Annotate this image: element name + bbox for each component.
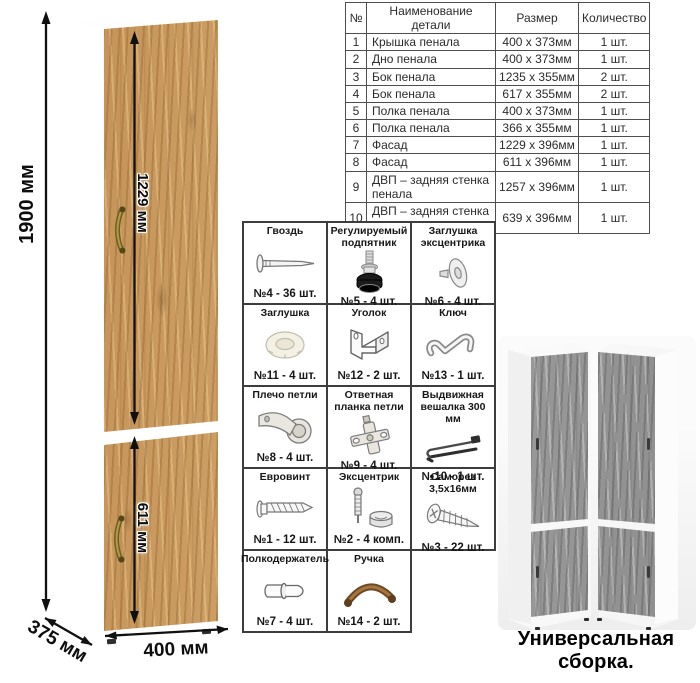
table-cell: 611 х 396мм — [496, 154, 579, 171]
universal-assembly-caption: Универсальная сборка. — [493, 628, 699, 674]
hardware-item-count: №3 - 22 шт. — [422, 542, 485, 557]
table-cell: 5 — [346, 102, 367, 119]
table-row: 1Крышка пенала400 х 373мм1 шт. — [346, 34, 650, 51]
hardware-row: Полкодержатель№7 - 4 шт.Ручка№14 - 2 шт. — [243, 550, 495, 632]
hardware-item-name: Евровинт — [259, 469, 312, 484]
table-cell: 1 шт. — [579, 171, 650, 202]
table-cell: 6 — [346, 120, 367, 137]
table-cell: 639 х 396мм — [496, 202, 579, 233]
variant-foot — [597, 618, 602, 621]
table-cell: Фасад — [367, 137, 496, 154]
table-row: 6Полка пенала366 х 355мм1 шт. — [346, 120, 650, 137]
table-cell: 4 — [346, 85, 367, 102]
hardware-item: Евровинт№1 - 12 шт. — [243, 468, 327, 550]
hardware-item: Гвоздь№4 - 36 шт. — [243, 222, 327, 304]
hardware-item-name: Регулируемый подпятник — [328, 223, 410, 250]
hardware-row: Заглушка№11 - 4 шт.Уголок№12 - 2 шт.Ключ… — [243, 304, 495, 386]
hardware-item: Выдвижная вешалка 300 мм№10 - 1 шт. — [411, 386, 495, 468]
table-cell: 400 х 373мм — [496, 102, 579, 119]
variant-left-handle — [536, 566, 539, 578]
dimension-lower-door-label: 611 мм — [131, 468, 153, 588]
hardware-item-count: №11 - 4 шт. — [254, 370, 316, 385]
hardware-item: Плечо петли№8 - 4 шт. — [243, 386, 327, 468]
hardware-item: Полкодержатель№7 - 4 шт. — [243, 550, 327, 632]
hardware-item: Уголок№12 - 2 шт. — [327, 304, 411, 386]
table-cell: Крышка пенала — [367, 34, 496, 51]
table-row: 3Бок пенала1235 х 355мм2 шт. — [346, 68, 650, 85]
table-cell: 2 шт. — [579, 68, 650, 85]
euroscrew-icon — [244, 484, 326, 534]
hardware-item: Ключ№13 - 1 шт. — [411, 304, 495, 386]
table-cell: 2 — [346, 51, 367, 68]
parts-table-header-row: № Наименование детали Размер Количество — [346, 3, 650, 34]
table-cell: 1 шт. — [579, 137, 650, 154]
hinge-plate-icon — [328, 414, 410, 460]
hardware-item-name: Саморез 3,5х16мм — [412, 469, 494, 496]
hardware-item: Эксцентрик№2 - 4 комп. — [327, 468, 411, 550]
hardware-item-name: Выдвижная вешалка 300 мм — [412, 387, 494, 425]
hardware-row: Евровинт№1 - 12 шт.Эксцентрик№2 - 4 комп… — [243, 468, 495, 550]
table-cell: 1 шт. — [579, 51, 650, 68]
nail-icon — [244, 238, 326, 288]
table-row: 7Фасад1229 х 396мм1 шт. — [346, 137, 650, 154]
dimension-upper-door-label: 1229 мм — [131, 143, 153, 263]
hardware-item-count: №14 - 2 шт. — [338, 616, 401, 631]
table-row: 9ДВП – задняя стенка пенала1257 х 396мм1… — [346, 171, 650, 202]
table-cell: 1 шт. — [579, 102, 650, 119]
shelf-pin-icon — [244, 566, 326, 616]
table-cell: 1 — [346, 34, 367, 51]
table-row: 2Дно пенала400 х 373мм1 шт. — [346, 51, 650, 68]
table-cell: 400 х 373мм — [496, 51, 579, 68]
parts-table-header: Размер — [496, 3, 579, 34]
parts-table-header: Количество — [579, 3, 650, 34]
hardware-item-name: Уголок — [351, 305, 388, 320]
hardware-item-count: №8 - 4 шт. — [257, 452, 313, 467]
hardware-item-name: Заглушка — [260, 305, 311, 320]
table-cell: ДВП – задняя стенка пенала — [367, 171, 496, 202]
assembly-sheet: 1900 мм 1229 мм 611 мм 400 мм 375 мм № Н… — [0, 0, 700, 683]
hardware-item: Регулируемый подпятник№5 - 4 шт. — [327, 222, 411, 304]
table-cell: 3 — [346, 68, 367, 85]
eccentric-plug-icon — [412, 250, 494, 296]
hardware-item-count: №7 - 4 шт. — [257, 616, 313, 631]
hardware-item-count: №2 - 4 комп. — [334, 534, 404, 549]
parts-table-header: № — [346, 3, 367, 34]
table-cell: Дно пенала — [367, 51, 496, 68]
table-row: 5Полка пенала400 х 373мм1 шт. — [346, 102, 650, 119]
table-cell: 400 х 373мм — [496, 34, 579, 51]
table-cell: Фасад — [367, 154, 496, 171]
hardware-row: Плечо петли№8 - 4 шт.Ответная планка пет… — [243, 386, 495, 468]
key-icon — [412, 320, 494, 370]
hardware-grid: Гвоздь№4 - 36 шт.Регулируемый подпятник№… — [242, 221, 496, 633]
hardware-item-name: Плечо петли — [251, 387, 318, 402]
table-cell: Полка пенала — [367, 102, 496, 119]
parts-table-header: Наименование детали — [367, 3, 496, 34]
hardware-row: Гвоздь№4 - 36 шт.Регулируемый подпятник№… — [243, 222, 495, 304]
hardware-item-name: Эксцентрик — [338, 469, 400, 484]
dimension-height-label: 1900 мм — [16, 144, 38, 264]
hardware-empty-cell — [411, 550, 495, 632]
table-cell: 2 шт. — [579, 85, 650, 102]
table-cell: 1 шт. — [579, 202, 650, 233]
photo-background — [498, 336, 696, 630]
parts-table: № Наименование детали Размер Количество … — [345, 2, 650, 234]
hardware-item-name: Гвоздь — [266, 223, 305, 238]
self-tapping-screw-icon — [412, 496, 494, 542]
table-cell: 8 — [346, 154, 367, 171]
hardware-item: Саморез 3,5х16мм№3 - 22 шт. — [411, 468, 495, 550]
table-cell: 617 х 355мм — [496, 85, 579, 102]
table-cell: 1235 х 355мм — [496, 68, 579, 85]
pullout-hanger-icon — [412, 425, 494, 471]
table-cell: Полка пенала — [367, 120, 496, 137]
hardware-grid-body: Гвоздь№4 - 36 шт.Регулируемый подпятник№… — [243, 222, 495, 632]
variant-right-handle — [647, 566, 650, 578]
variant-foot — [584, 618, 589, 621]
table-row: 8Фасад611 х 396мм1 шт. — [346, 154, 650, 171]
parts-table-body: 1Крышка пенала400 х 373мм1 шт.2Дно пенал… — [346, 34, 650, 234]
table-cell: 1 шт. — [579, 34, 650, 51]
hardware-item: Заглушка№11 - 4 шт. — [243, 304, 327, 386]
table-cell: Бок пенала — [367, 68, 496, 85]
hardware-item-name: Заглушка эксцентрика — [412, 223, 494, 250]
hardware-item-name: Ключ — [438, 305, 468, 320]
hardware-item-count: №4 - 36 шт. — [254, 288, 317, 303]
table-cell: 1257 х 396мм — [496, 171, 579, 202]
adjustable-foot-icon — [328, 250, 410, 296]
table-cell: 9 — [346, 171, 367, 202]
handle-icon — [328, 566, 410, 616]
hardware-item: Ручка№14 - 2 шт. — [327, 550, 411, 632]
table-cell: 1 шт. — [579, 120, 650, 137]
plug-icon — [244, 320, 326, 370]
table-cell: 7 — [346, 137, 367, 154]
hardware-item-name: Полкодержатель — [240, 551, 330, 566]
hardware-item-name: Ответная планка петли — [328, 387, 410, 414]
hardware-item-name: Ручка — [353, 551, 385, 566]
corner-bracket-icon — [328, 320, 410, 370]
table-row: 4Бок пенала617 х 355мм2 шт. — [346, 85, 650, 102]
table-cell: Бок пенала — [367, 85, 496, 102]
hardware-item-count: №12 - 2 шт. — [338, 370, 401, 385]
variant-left-handle — [536, 438, 539, 450]
table-cell: 1 шт. — [579, 154, 650, 171]
hinge-arm-icon — [244, 402, 326, 452]
table-cell: 366 х 355мм — [496, 120, 579, 137]
hardware-item: Заглушка эксцентрика№6 - 4 шт. — [411, 222, 495, 304]
hardware-item-count: №1 - 12 шт. — [254, 534, 317, 549]
variant-right-handle — [647, 438, 650, 450]
eccentric-cam-icon — [328, 484, 410, 534]
table-cell: 1229 х 396мм — [496, 137, 579, 154]
hardware-item-count: №13 - 1 шт. — [422, 370, 485, 385]
hardware-item: Ответная планка петли№9 - 4 шт. — [327, 386, 411, 468]
